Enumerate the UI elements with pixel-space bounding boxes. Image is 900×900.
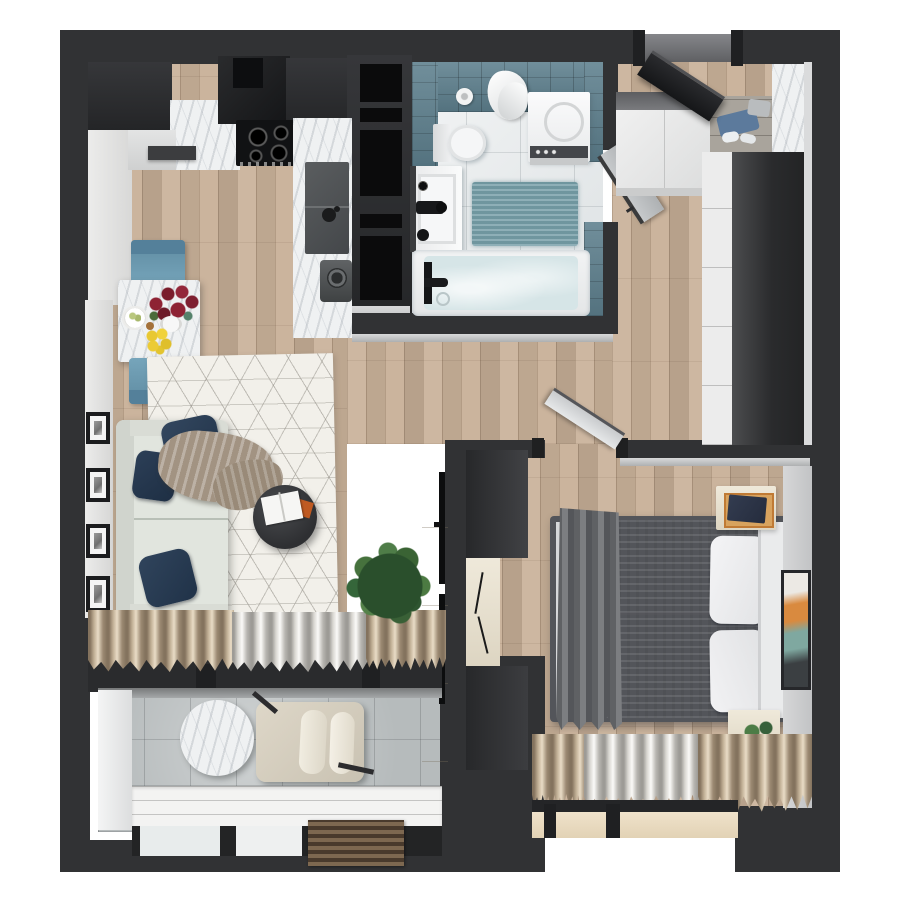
bedroom-wardrobe-upper: [466, 450, 528, 558]
sofa-seat-seam: [134, 518, 228, 520]
bedroom-artwork: [781, 570, 811, 690]
kitchen-hood-chimney: [233, 58, 263, 88]
hall-white-cabinets-face: [616, 188, 712, 196]
potted-plant: [342, 538, 438, 634]
kitchen-coffee-machine-top: [327, 268, 347, 288]
wall-frame-2: [86, 468, 110, 502]
wall-frame-4: [86, 576, 110, 612]
kitchen-column-panel-5: [360, 236, 402, 300]
nightstand-folded-clothes: [727, 494, 767, 523]
wall-frame-1: [86, 412, 110, 444]
bedroom-window-frame: [532, 800, 738, 812]
kitchen-sink-faucet: [322, 208, 336, 222]
kitchen-column-panel-1: [360, 64, 402, 102]
bathroom-bottom-wall: [347, 313, 618, 334]
balcony-side-wall: [98, 690, 132, 830]
toilet-bowl: [448, 125, 486, 161]
dining-chair-top-back: [131, 240, 185, 254]
hall-white-wardrobe: [702, 152, 734, 445]
apartment-floor-plan: [0, 0, 900, 900]
balcony-wood-grate: [308, 820, 404, 866]
vanity-faucet-head: [436, 202, 447, 213]
bath-mat: [472, 182, 578, 246]
kitchen-upper-cabinet-left: [88, 62, 172, 133]
kitchen-column-panel-4: [360, 214, 402, 228]
hall-right-wall-face: [804, 62, 812, 445]
hall-white-cabinets-seam: [664, 110, 665, 188]
bed-dark-throw: [556, 508, 622, 730]
bathroom-bottom-wall-face: [352, 334, 613, 342]
bedroom-window-mullion-2: [606, 804, 620, 838]
living-left-wall-face: [85, 300, 113, 618]
balcony-wall-face: [98, 688, 442, 698]
kitchen-column-panel-2: [360, 108, 402, 122]
vanity-accessory-top: [418, 181, 428, 191]
washing-machine-front: [530, 158, 588, 165]
snack-plate-food: [129, 312, 141, 322]
kitchen-wall-shelf: [148, 146, 196, 160]
bedroom-door-frame-left: [532, 438, 544, 458]
sofa-backrest: [116, 420, 134, 620]
kitchen-column-panel-3: [360, 130, 402, 196]
tv-bracket-1: [434, 522, 440, 527]
bedroom-corner-block: [735, 806, 840, 872]
bedroom-artwork-canvas: [784, 573, 808, 687]
tub-drain: [436, 292, 450, 306]
floor-corridor: [347, 334, 618, 444]
bedroom-window-mullion-1: [544, 804, 556, 838]
balcony-chair-cushion-1: [298, 709, 327, 774]
wall-frame-3: [86, 524, 110, 558]
toilet-paper-roll: [456, 88, 473, 105]
shelf-clothes-grey: [747, 99, 771, 118]
tub-faucet-spout: [424, 278, 448, 287]
bedroom-wardrobe-lower: [466, 666, 528, 770]
kitchen-cooktop: [236, 120, 296, 166]
bedroom-top-wall-face: [620, 458, 810, 466]
bedroom-window-sill: [532, 812, 738, 838]
vanity-accessory-bottom: [417, 229, 429, 241]
lemon-bowl: [140, 324, 176, 358]
entry-door-frame-right: [731, 30, 743, 66]
washing-machine-controls: [530, 146, 588, 158]
balcony-round-table: [180, 700, 254, 776]
wall-right: [810, 30, 840, 872]
wall-tv-upper: [439, 472, 445, 584]
washing-machine-drum: [544, 102, 584, 142]
hall-marble-panel: [772, 64, 804, 154]
hall-dark-wardrobe: [732, 152, 804, 445]
entry-door-frame-left: [633, 30, 645, 66]
kitchen-tall-white-unit: [88, 130, 132, 305]
kitchen-cooktop-controls: [240, 162, 292, 166]
